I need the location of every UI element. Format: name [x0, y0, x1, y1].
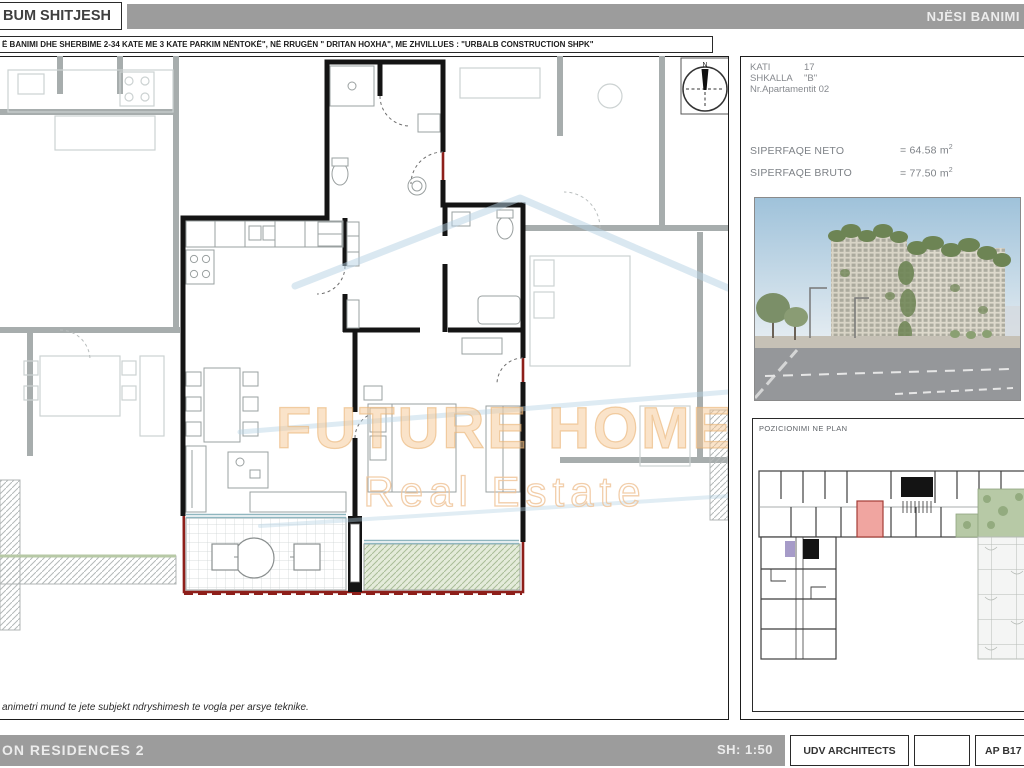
balcony-left [186, 518, 346, 590]
gross-area-label: SIPERFAQE BRUTO [750, 166, 900, 181]
architect-box: UDV ARCHITECTS [790, 735, 909, 766]
gross-area-value: = 77.50 m [900, 167, 949, 179]
apartment-number-label: Nr.Apartamentit [750, 84, 816, 95]
apartment-code-box: AP B17 [975, 735, 1024, 766]
watermark-line2: Real Estate [363, 468, 646, 515]
footer-project-name: ON RESIDENCES 2 [2, 742, 145, 758]
album-title: BUM SHITJESH [3, 8, 121, 24]
project-line-box: Ë BANIMI DHE SHERBIME 2-34 KATE ME 3 KAT… [0, 36, 713, 53]
footer-project-bar: ON RESIDENCES 2 SH: 1:50 [0, 735, 785, 766]
watermark-line1: FUTURE HOME [276, 396, 728, 461]
position-panel: POZICIONIMI NE PLAN [752, 418, 1024, 712]
building-render-image [754, 197, 1021, 401]
compass-north-label: N [702, 62, 707, 69]
album-title-box: BUM SHITJESH [0, 2, 122, 30]
compass-icon: N [681, 58, 728, 114]
kati-label: KATI [750, 62, 804, 73]
highlighted-unit [857, 501, 883, 537]
project-line: Ë BANIMI DHE SHERBIME 2-34 KATE ME 3 KAT… [2, 40, 712, 49]
units-bar: NJËSI BANIMI [127, 4, 1024, 29]
apartment-code: AP B17 [985, 745, 1024, 757]
empty-title-box [914, 735, 970, 766]
net-area-value: = 64.58 m [900, 145, 949, 157]
area-block: SIPERFAQE NETO= 64.58 m2 SIPERFAQE BRUTO… [750, 140, 1020, 181]
shkalla-value: "B" [804, 73, 817, 84]
units-bar-label: NJËSI BANIMI [927, 9, 1020, 24]
balcony-right [364, 544, 520, 590]
plan-sheet-page: BUM SHITJESH NJËSI BANIMI Ë BANIMI DHE S… [0, 0, 1024, 768]
footer-scale: SH: 1:50 [717, 742, 773, 757]
disclaimer-text: animetri mund te jete subjekt ndryshimes… [2, 702, 722, 713]
net-area-label: SIPERFAQE NETO [750, 144, 900, 159]
unit-info-block: KATI17 SHKALLA"B" Nr.Apartamentit 02 [750, 62, 1020, 95]
architect-name: UDV ARCHITECTS [791, 745, 908, 757]
kati-value: 17 [804, 62, 815, 73]
key-plan [753, 419, 1024, 712]
apartment-number-value: 02 [819, 84, 830, 95]
floor-plan: FUTURE HOME Real Estate N [0, 56, 728, 718]
shkalla-label: SHKALLA [750, 73, 804, 84]
